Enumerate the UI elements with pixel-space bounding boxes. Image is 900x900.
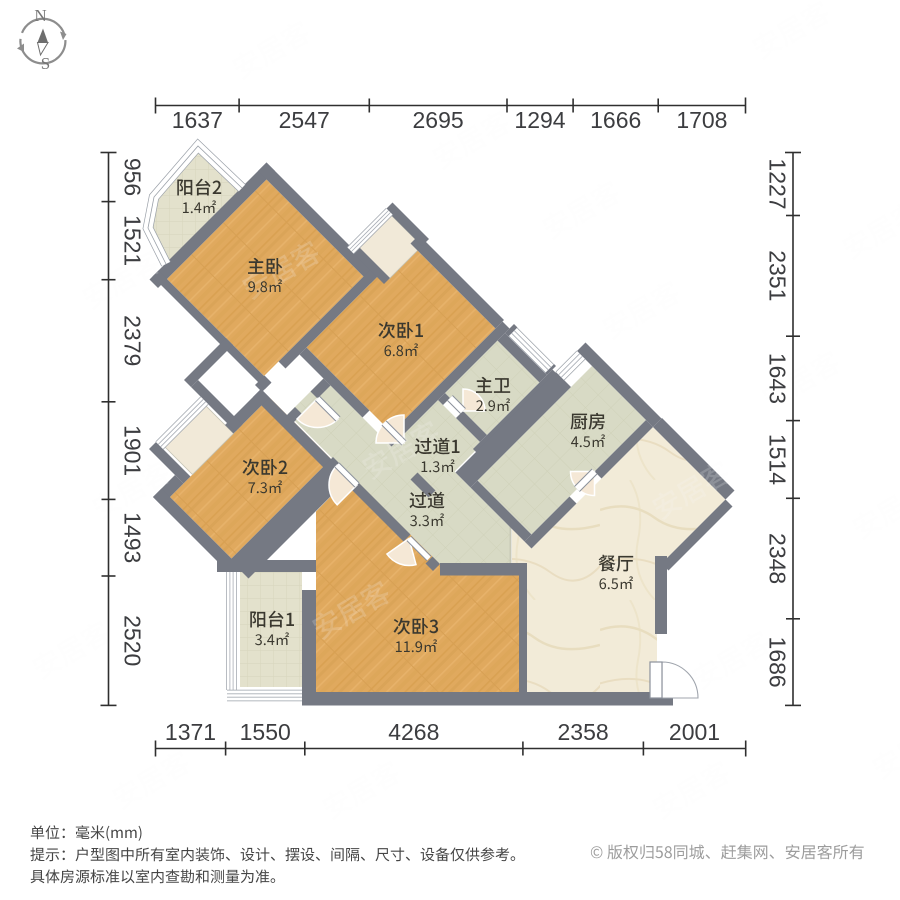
- svg-text:1514: 1514: [765, 434, 791, 485]
- svg-text:1550: 1550: [240, 719, 291, 745]
- svg-text:2379: 2379: [120, 315, 146, 366]
- svg-text:1227: 1227: [765, 158, 791, 209]
- svg-text:1493: 1493: [120, 512, 146, 563]
- svg-text:1637: 1637: [172, 107, 223, 133]
- svg-text:S: S: [41, 54, 50, 73]
- svg-text:2351: 2351: [765, 250, 791, 301]
- svg-text:1371: 1371: [165, 719, 216, 745]
- svg-text:1643: 1643: [765, 353, 791, 404]
- svg-text:2348: 2348: [765, 533, 791, 584]
- svg-text:1294: 1294: [514, 107, 565, 133]
- svg-text:N: N: [34, 6, 46, 25]
- svg-text:1901: 1901: [120, 425, 146, 476]
- svg-text:2358: 2358: [558, 719, 609, 745]
- svg-text:1708: 1708: [676, 107, 727, 133]
- svg-text:2001: 2001: [669, 719, 720, 745]
- svg-text:2547: 2547: [279, 107, 330, 133]
- svg-text:1686: 1686: [765, 637, 791, 688]
- svg-text:2695: 2695: [413, 107, 464, 133]
- svg-text:956: 956: [120, 158, 146, 196]
- svg-text:1521: 1521: [120, 215, 146, 266]
- svg-text:2520: 2520: [120, 615, 146, 666]
- svg-text:4268: 4268: [388, 719, 439, 745]
- svg-text:1666: 1666: [590, 107, 641, 133]
